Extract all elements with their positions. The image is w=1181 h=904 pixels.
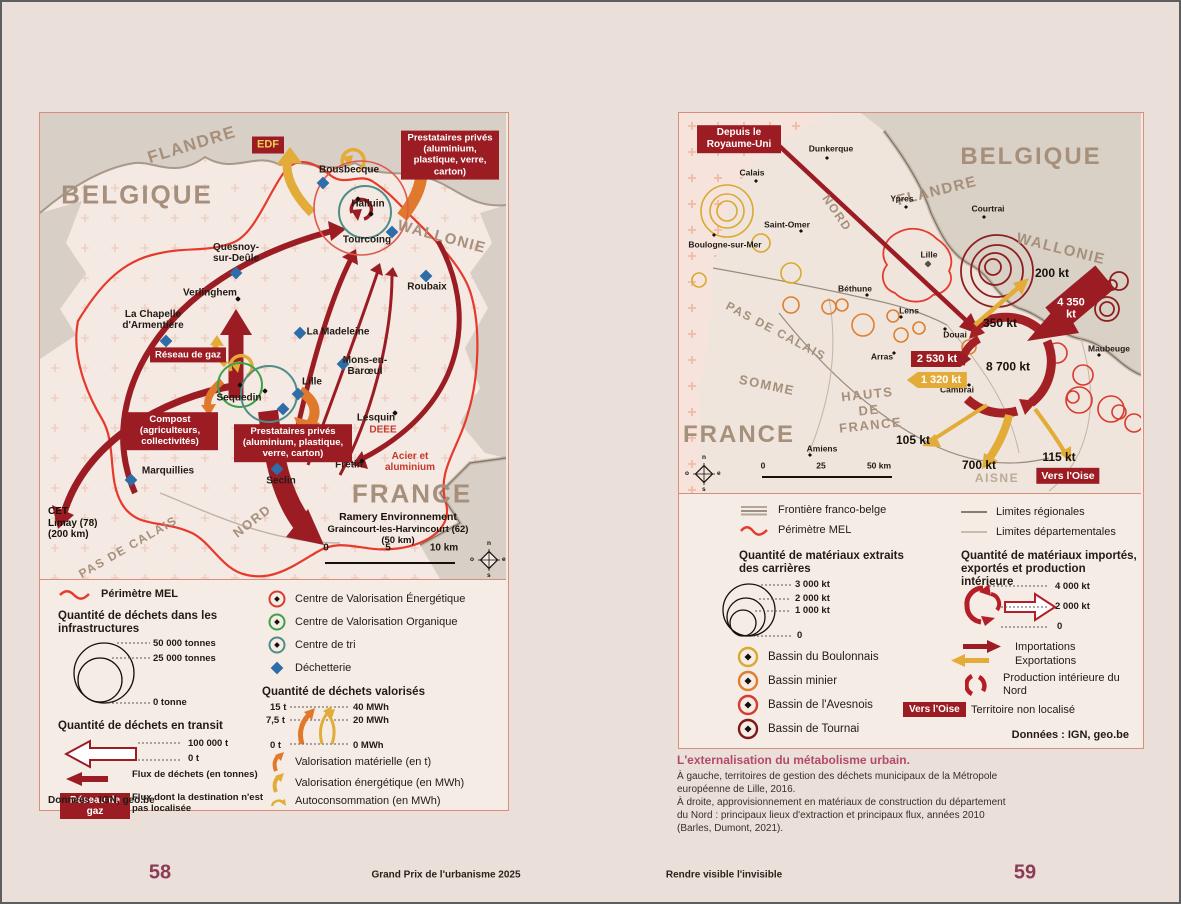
compass-e: e <box>502 556 506 563</box>
legend-2000kt-imp: 2 000 kt <box>1055 601 1090 612</box>
legend-title-transit: Quantité de déchets en transit <box>58 720 223 733</box>
legend-dechetterie: Déchetterie <box>268 659 351 677</box>
legend-label: Exportations <box>1003 655 1076 667</box>
left-map: FLANDRE BELGIQUE WALLONIE FRANCE NORD PA… <box>40 113 506 579</box>
cet-dist: (200 km) <box>48 529 97 541</box>
book-spread: { "footer": { "page_left": "58", "sectio… <box>0 0 1181 904</box>
legend-infra-50000: 50 000 tonnes <box>153 638 216 649</box>
city-label-bousbecque: Bousbecque <box>319 166 379 177</box>
city-label-tourcoing: Tourcoing <box>343 236 391 247</box>
scale-label-50km: 50 km <box>867 461 891 470</box>
flow-badge-prestataires-centre: Prestataires privés (aluminium, plastiqu… <box>234 424 352 462</box>
legend-0kt: 0 <box>797 630 802 641</box>
legend-exportations: Exportations <box>949 654 1076 667</box>
legend-perimetre-mel: Périmètre MEL <box>58 588 178 600</box>
city-label-dunkerque: Dunkerque <box>809 144 853 153</box>
footer-section-right: Rendre visible l'invisible <box>666 870 782 881</box>
importations-arrow-icon <box>961 640 1003 653</box>
left-figure-waste-map: FLANDRE BELGIQUE WALLONIE FRANCE NORD PA… <box>39 112 509 811</box>
city-label-lille: Lille <box>302 378 322 389</box>
flow-label-700kt: 700 kt <box>962 458 996 472</box>
compass-s: s <box>487 572 491 579</box>
legend-label: Périmètre MEL <box>101 588 178 600</box>
legend-label: Centre de Valorisation Énergétique <box>295 593 465 605</box>
compass-n: n <box>702 454 706 461</box>
production-interieure-icon <box>965 673 989 697</box>
flow-label-115kt: 115 kt <box>1042 450 1075 464</box>
region-label-france: FRANCE <box>352 479 472 510</box>
footer-section-left: Grand Prix de l'urbanisme 2025 <box>371 870 520 881</box>
legend-label: Centre de Valorisation Organique <box>295 616 457 628</box>
region-label-hauts-de-france: HAUTS DE FRANCE <box>829 383 909 437</box>
legend-label: Valorisation énergétique (en MWh) <box>295 777 464 789</box>
city-label-maubeuge: Maubeuge <box>1088 344 1130 353</box>
legend-label: Limites départementales <box>996 526 1116 538</box>
flow-badge-depuis-uk: Depuis le Royaume-Uni <box>697 125 781 153</box>
city-label-bethune: Béthune <box>838 284 872 293</box>
legend-label: Bassin du Boulonnais <box>768 651 879 663</box>
legend-infra-0: 0 tonne <box>153 697 187 708</box>
flow-badge-reseau-de-gaz: Réseau de gaz <box>150 347 226 362</box>
region-label-france: FRANCE <box>683 421 795 449</box>
city-label-seclin: Seclin <box>266 477 295 488</box>
city-label-quesnoy: Quesnoy-sur-Deûle <box>205 243 267 265</box>
city-label-mons-en-baroeul: Mons-en-Barœul <box>334 356 396 378</box>
legend-valo-mat: Valorisation matérielle (en t) <box>270 752 431 772</box>
cvo-icon <box>268 613 286 631</box>
left-map-legend: Périmètre MEL Quantité de déchets dans l… <box>40 579 506 809</box>
city-label-lille: Lille <box>920 250 937 259</box>
exportations-arrow-icon <box>949 654 991 667</box>
compass-n: n <box>487 540 491 547</box>
legend-perimetre-mel: Périmètre MEL <box>739 524 851 536</box>
city-label-verlinghem: Verlinghem <box>183 289 237 300</box>
city-label-lens: Lens <box>899 306 919 315</box>
legend-title-valorises: Quantité de déchets valorisés <box>262 686 425 699</box>
legend-label: Limites régionales <box>996 506 1085 518</box>
destination-ramery: Ramery Environnement Graincourt-les-Harv… <box>318 511 478 546</box>
legend-title-extraction: Quantité de matériaux extraits des carri… <box>739 550 914 576</box>
legend-label: Centre de tri <box>295 639 356 651</box>
legend-transit-0: 0 t <box>188 753 199 764</box>
legend-label: Autoconsommation (en MWh) <box>295 795 441 807</box>
legend-flux-label: Flux de déchets (en tonnes) <box>132 769 262 780</box>
city-label-fretin: Frétin <box>335 461 363 472</box>
bassin-minier-icon <box>737 670 759 692</box>
tri-icon <box>268 636 286 654</box>
legend-1000kt: 1 000 kt <box>795 605 830 616</box>
flow-label-105kt: 105 kt <box>896 433 930 447</box>
dechetterie-icon <box>268 659 286 677</box>
cet-ville: Limay (78) <box>48 518 97 530</box>
legend-transit-100000: 100 000 t <box>188 738 228 749</box>
legend-label: Déchetterie <box>295 662 351 674</box>
legend-infra-25000: 25 000 tonnes <box>153 653 216 664</box>
legend-cve: Centre de Valorisation Énergétique <box>268 590 465 608</box>
cve-icon <box>268 590 286 608</box>
right-map: BELGIQUE FLANDRE NORD WALLONIE PAS DE CA… <box>679 113 1141 493</box>
flow-badge-vers-oise: Vers l'Oise <box>1036 468 1099 484</box>
compass-o: o <box>470 556 474 563</box>
right-map-legend: Frontière franco-belge Périmètre MEL Qua… <box>679 493 1141 747</box>
destination-cet: CET Limay (78) (200 km) <box>48 506 97 541</box>
legend-v0: 0 t <box>270 740 281 751</box>
caption-body-2: À droite, approvisionnement en matériaux… <box>677 796 1009 835</box>
regional-line-icon <box>961 511 987 513</box>
city-label-arras: Arras <box>871 352 893 361</box>
city-label-courtrai: Courtrai <box>971 204 1004 213</box>
scale-label-0: 0 <box>323 544 329 555</box>
legend-production: Production intérieure du Nord <box>965 672 1133 698</box>
city-label-la-chapelle: La Chapelle d'Armentière <box>113 310 193 332</box>
flux-arrow-icon <box>64 772 110 786</box>
valorisation-energetique-icon <box>270 773 286 793</box>
city-label-calais: Calais <box>739 168 764 177</box>
scale-label-0: 0 <box>761 461 766 470</box>
legend-valo-en: Valorisation énergétique (en MWh) <box>270 773 464 793</box>
city-label-ypres: Ypres <box>890 194 913 203</box>
annotation-deee: DEEE <box>369 426 396 437</box>
flow-label-2530kt: 2 530 kt <box>911 351 971 367</box>
legend-v15: 15 t <box>270 702 286 713</box>
region-label-aisne: AISNE <box>975 471 1019 485</box>
caption-body-1: À gauche, territoires de gestion des déc… <box>677 770 1009 796</box>
city-label-saint-omer: Saint-Omer <box>764 220 810 229</box>
flow-label-8700kt: 8 700 kt <box>986 360 1032 373</box>
flow-label-4350kt: 4 350 kt <box>1051 297 1091 320</box>
legend-label: Bassin de Tournai <box>768 723 859 735</box>
legend-3000kt: 3 000 kt <box>795 579 830 590</box>
wavy-line-icon <box>739 524 769 536</box>
legend-bassin-minier: Bassin minier <box>737 670 837 692</box>
legend-cvo: Centre de Valorisation Organique <box>268 613 457 631</box>
right-figure-materials-map: BELGIQUE FLANDRE NORD WALLONIE PAS DE CA… <box>678 112 1144 749</box>
legend-flux-row <box>64 772 110 786</box>
page-number-left: 58 <box>149 862 171 885</box>
page-number-right: 59 <box>1014 862 1036 885</box>
legend-label: Frontière franco-belge <box>778 504 886 516</box>
flow-label-200kt: 200 kt <box>1035 266 1069 280</box>
legend-bassin-avesnois: Bassin de l'Avesnois <box>737 694 873 716</box>
city-label-sequedin: Sequedin <box>216 394 261 405</box>
left-source: Données : IGN, geo.be <box>48 795 155 806</box>
departmental-line-icon <box>961 531 987 533</box>
compass-s: s <box>702 486 706 493</box>
legend-frontiere: Frontière franco-belge <box>739 504 886 516</box>
city-label-amiens: Amiens <box>807 444 838 453</box>
transit-arrow-scale-icon <box>64 738 184 772</box>
legend-autocons: Autoconsommation (en MWh) <box>270 794 441 808</box>
figure-caption: L'externalisation du métabolisme urbain.… <box>677 753 1009 835</box>
flow-label-350kt: 350 kt <box>983 316 1017 330</box>
compass-art <box>476 547 502 573</box>
cet-name: CET <box>48 506 97 518</box>
wavy-line-icon <box>58 588 92 600</box>
city-label-douai: Douai <box>943 330 967 339</box>
flow-badge-compost: Compost (agriculteurs, collectivités) <box>122 412 218 450</box>
compass-rose: n s o e <box>691 461 717 487</box>
ramery-name: Ramery Environnement <box>318 511 478 524</box>
scale-label-5: 5 <box>385 544 391 555</box>
compass-art <box>691 461 717 487</box>
legend-bassin-boulonnais: Bassin du Boulonnais <box>737 646 879 668</box>
city-label-roubaix: Roubaix <box>407 283 446 294</box>
valorisation-scale-icon <box>288 698 352 750</box>
city-label-la-madeleine: La Madeleine <box>307 328 370 339</box>
city-label-boulogne: Boulogne-sur-Mer <box>688 240 761 249</box>
scale-label-10km: 10 km <box>430 544 458 555</box>
legend-bassin-tournai: Bassin de Tournai <box>737 718 859 740</box>
legend-label: Périmètre MEL <box>778 524 851 536</box>
legend-label: Production intérieure du Nord <box>1003 672 1133 698</box>
legend-label: Territoire non localisé <box>971 704 1075 716</box>
bassin-tournai-icon <box>737 718 759 740</box>
legend-limites-departementales: Limites départementales <box>961 526 1116 538</box>
caption-title: L'externalisation du métabolisme urbain. <box>677 753 1009 767</box>
legend-v75: 7,5 t <box>266 715 285 726</box>
compass-rose: n s o e <box>476 547 502 573</box>
legend-title-infra: Quantité de déchets dans les infrastruct… <box>58 610 218 636</box>
legend-label: Bassin de l'Avesnois <box>768 699 873 711</box>
city-label-marquillies: Marquillies <box>142 467 194 478</box>
city-label-halluin: Halluin <box>351 200 384 211</box>
bassin-boulonnais-icon <box>737 646 759 668</box>
legend-label: Bassin minier <box>768 675 837 687</box>
valorisation-materielle-icon <box>270 752 286 772</box>
legend-limites-regionales: Limites régionales <box>961 506 1085 518</box>
flow-label-1320kt: 1 320 kt <box>907 372 967 388</box>
legend-0-imp: 0 <box>1057 621 1062 632</box>
flow-badge-prestataires-ne: Prestataires privés (aluminium, plastiqu… <box>401 131 499 180</box>
city-label-lesquin: Lesquin <box>357 414 395 425</box>
legend-mwh40: 40 MWh <box>353 702 389 713</box>
scale-label-25: 25 <box>816 461 825 470</box>
compass-o: o <box>685 470 689 477</box>
ramery-ville: Graincourt-les-Harvincourt (62) <box>318 524 478 535</box>
region-label-belgique: BELGIQUE <box>61 180 213 211</box>
legend-label: Valorisation matérielle (en t) <box>295 756 431 768</box>
legend-mwh20: 20 MWh <box>353 715 389 726</box>
border-line-icon <box>739 504 769 516</box>
legend-2000kt: 2 000 kt <box>795 593 830 604</box>
legend-4000kt: 4 000 kt <box>1055 581 1090 592</box>
legend-label: Importations <box>1015 641 1076 653</box>
right-source: Données : IGN, geo.be <box>1012 729 1129 741</box>
flow-badge-edf: EDF <box>252 137 284 154</box>
region-label-belgique: BELGIQUE <box>960 143 1101 171</box>
circle-size-scale-icon <box>62 635 152 713</box>
legend-territoire: Territoire non localisé <box>971 704 1075 716</box>
legend-mwh0: 0 MWh <box>353 740 384 751</box>
legend-tri: Centre de tri <box>268 636 356 654</box>
bassin-avesnois-icon <box>737 694 759 716</box>
legend-vers-oise-badge: Vers l'Oise <box>903 702 966 717</box>
annotation-acier-aluminium: Acier et aluminium <box>373 452 447 474</box>
legend-importations: Importations <box>961 640 1076 653</box>
autoconsommation-icon <box>270 794 286 808</box>
compass-e: e <box>717 470 721 477</box>
